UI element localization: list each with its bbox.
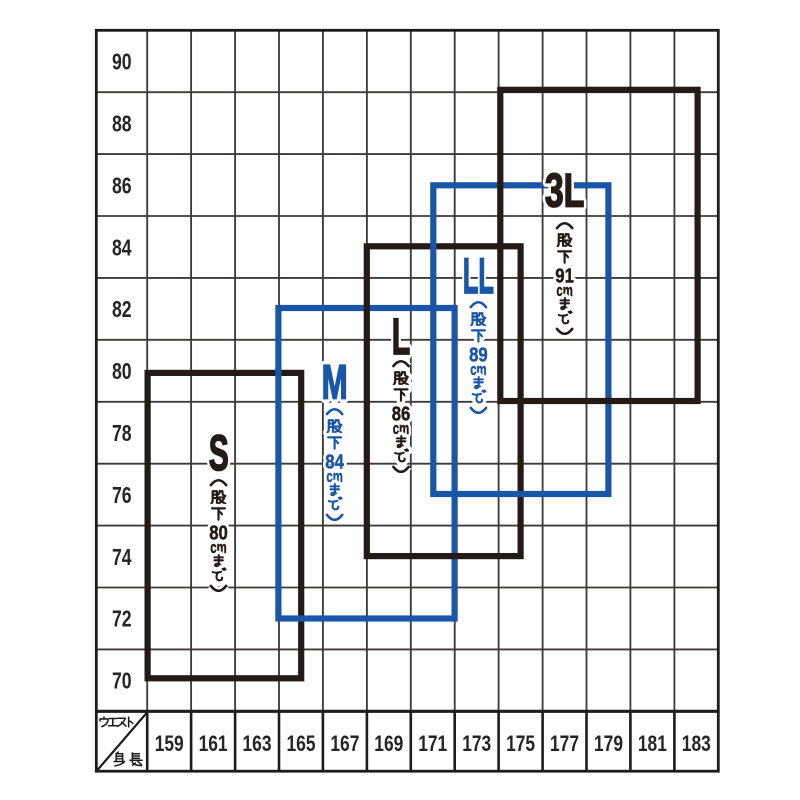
svg-text:175: 175 — [506, 731, 535, 756]
svg-text:163: 163 — [243, 731, 272, 756]
svg-text:82: 82 — [112, 296, 132, 322]
svg-text:181: 181 — [638, 731, 667, 756]
svg-text:72: 72 — [112, 606, 132, 632]
svg-text:88: 88 — [112, 111, 132, 137]
svg-text:76: 76 — [112, 482, 132, 508]
svg-text:70: 70 — [112, 668, 132, 694]
svg-text:179: 179 — [594, 731, 623, 756]
svg-text:173: 173 — [462, 731, 491, 756]
svg-text:S: S — [209, 425, 229, 481]
svg-text:74: 74 — [112, 544, 132, 570]
svg-text:84: 84 — [112, 234, 132, 260]
svg-text:LL: LL — [463, 248, 494, 304]
svg-text:171: 171 — [418, 731, 447, 756]
svg-text:177: 177 — [550, 731, 579, 756]
svg-text:165: 165 — [287, 731, 316, 756]
svg-text:80: 80 — [112, 358, 132, 384]
svg-text:169: 169 — [374, 731, 403, 756]
svg-text:167: 167 — [330, 731, 359, 756]
svg-text:M: M — [322, 357, 348, 410]
svg-text:3L: 3L — [545, 163, 585, 216]
svg-text:161: 161 — [199, 731, 228, 756]
svg-text:90: 90 — [112, 49, 132, 75]
svg-text:86: 86 — [112, 172, 132, 198]
svg-text:78: 78 — [112, 420, 132, 446]
svg-text:L: L — [392, 308, 411, 365]
svg-text:159: 159 — [155, 731, 184, 756]
svg-text:183: 183 — [682, 731, 711, 756]
